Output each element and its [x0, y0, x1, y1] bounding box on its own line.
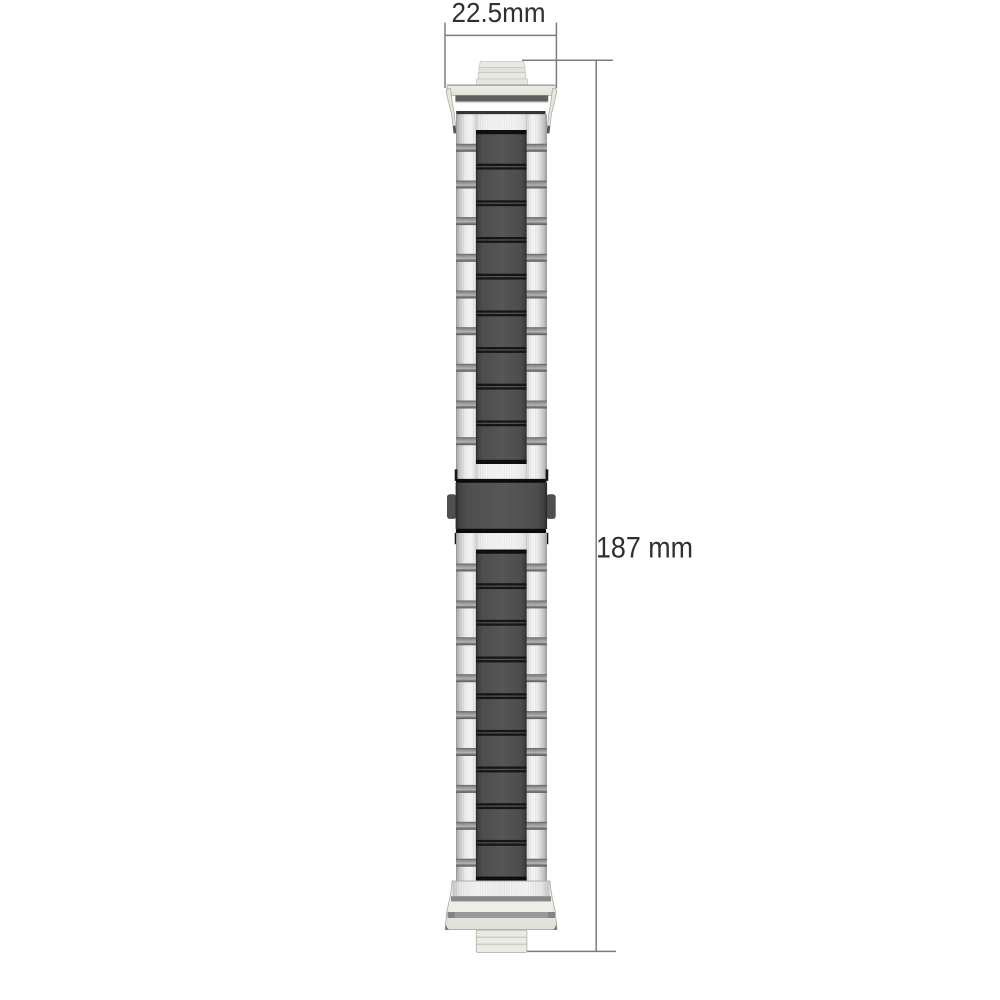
svg-text:187 mm: 187 mm	[596, 532, 693, 565]
svg-text:22.5mm: 22.5mm	[452, 0, 546, 28]
